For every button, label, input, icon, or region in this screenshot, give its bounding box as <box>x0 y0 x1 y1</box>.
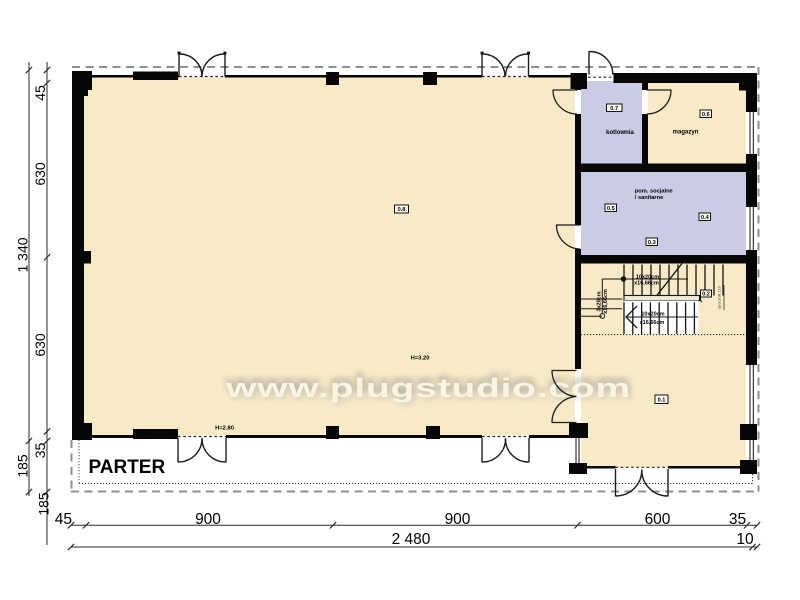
svg-text:spocznik 110: spocznik 110 <box>717 285 722 309</box>
svg-text:45: 45 <box>55 511 72 528</box>
svg-text:0.5: 0.5 <box>607 206 615 212</box>
svg-text:pom. socjalne: pom. socjalne <box>635 189 673 195</box>
svg-text:0.7: 0.7 <box>610 106 618 112</box>
svg-text:0.8: 0.8 <box>398 207 406 213</box>
svg-text:/ sanitarne: / sanitarne <box>635 195 663 201</box>
svg-text:10x20cm: 10x20cm <box>641 312 664 318</box>
svg-text:2 480: 2 480 <box>392 531 431 548</box>
svg-text:0.1: 0.1 <box>658 397 666 403</box>
svg-text:0.4: 0.4 <box>701 215 710 221</box>
svg-text:x16,66cm: x16,66cm <box>634 280 659 286</box>
svg-text:magazyn: magazyn <box>673 130 699 136</box>
svg-text:0.3: 0.3 <box>648 240 656 246</box>
svg-text:x16,66cm: x16,66cm <box>603 289 609 314</box>
svg-text:630: 630 <box>32 333 48 357</box>
svg-text:35: 35 <box>729 511 746 528</box>
svg-text:H=2.80: H=2.80 <box>215 426 234 432</box>
svg-text:45: 45 <box>32 85 48 101</box>
svg-text:3x20cm: 3x20cm <box>597 291 603 311</box>
svg-text:630: 630 <box>32 162 48 186</box>
svg-text:x16,66cm: x16,66cm <box>640 320 665 326</box>
svg-text:0.6: 0.6 <box>702 112 710 118</box>
svg-text:www.plugstudio.com: www.plugstudio.com <box>225 374 631 404</box>
svg-text:185: 185 <box>36 492 52 516</box>
svg-text:1 340: 1 340 <box>15 237 31 272</box>
svg-text:600: 600 <box>645 511 671 528</box>
svg-text:10: 10 <box>736 531 754 548</box>
svg-text:900: 900 <box>445 511 471 528</box>
svg-text:H=3.20: H=3.20 <box>411 356 430 362</box>
svg-text:kotlownia: kotlownia <box>606 130 634 136</box>
svg-text:900: 900 <box>195 511 221 528</box>
svg-text:185: 185 <box>15 454 31 478</box>
svg-text:PARTER: PARTER <box>89 457 166 478</box>
svg-text:0.2: 0.2 <box>702 292 710 298</box>
svg-text:10x20cm: 10x20cm <box>636 274 659 280</box>
svg-text:35: 35 <box>32 443 48 459</box>
